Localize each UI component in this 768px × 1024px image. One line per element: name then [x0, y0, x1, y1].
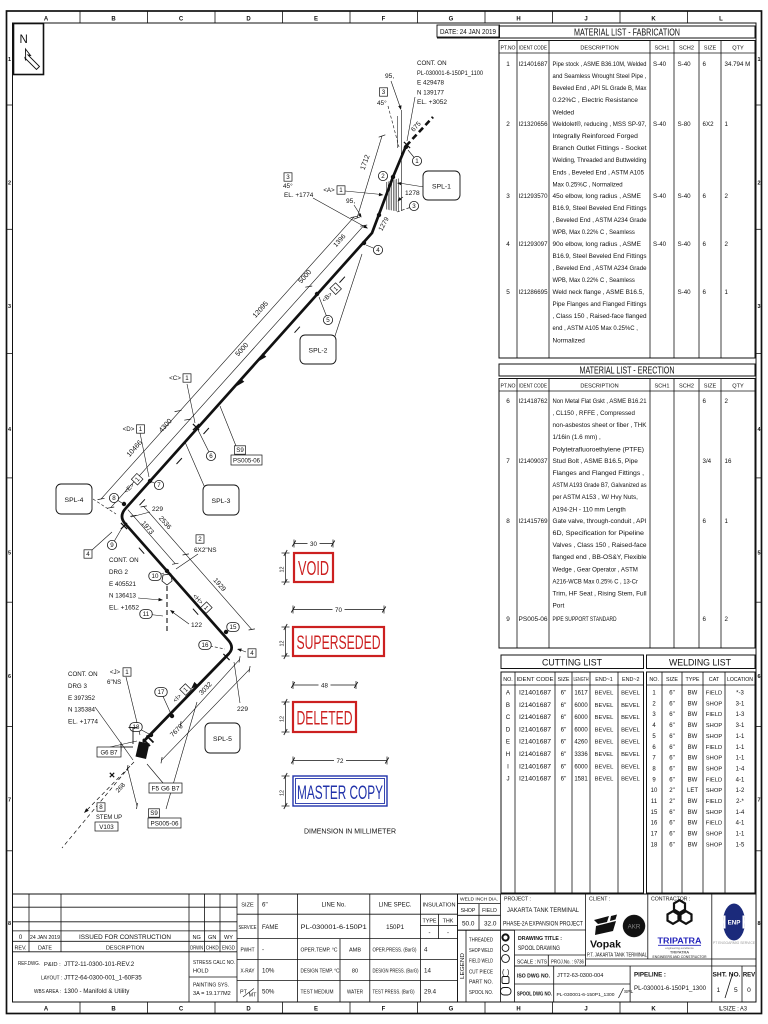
svg-text:EL. +1652: EL. +1652 — [109, 605, 140, 612]
svg-text:3336: 3336 — [574, 752, 588, 758]
svg-text:END~2: END~2 — [622, 677, 640, 683]
svg-text:PS005-06: PS005-06 — [233, 458, 261, 465]
svg-text:FIELD: FIELD — [706, 691, 722, 697]
svg-text:STRESS CALC NO.: STRESS CALC NO. — [193, 960, 235, 966]
svg-text:SIZE: SIZE — [704, 46, 717, 52]
svg-text:PIPELINE :: PIPELINE : — [634, 972, 666, 979]
svg-text:1-1: 1-1 — [736, 745, 745, 751]
svg-text:PROJ.No. : 9736: PROJ.No. : 9736 — [551, 960, 584, 966]
svg-text:I21401687: I21401687 — [519, 777, 552, 783]
svg-text:95,: 95, — [346, 198, 355, 205]
svg-text:CLIENT :: CLIENT : — [589, 897, 610, 903]
svg-text:Pipe stock , ASME B36.10M, Wel: Pipe stock , ASME B36.10M, Welded — [553, 61, 647, 68]
svg-text:CUTTING LIST: CUTTING LIST — [542, 658, 602, 669]
svg-text:1-4: 1-4 — [736, 767, 745, 773]
svg-text:9: 9 — [506, 616, 510, 623]
svg-text:1-4: 1-4 — [736, 810, 745, 816]
svg-text:6": 6" — [669, 832, 674, 838]
svg-text:G: G — [449, 1007, 454, 1013]
svg-text:30: 30 — [310, 541, 317, 548]
svg-text:6: 6 — [8, 674, 11, 680]
svg-text:SUPERSEDED: SUPERSEDED — [297, 633, 381, 654]
svg-text:I21401687: I21401687 — [519, 764, 552, 770]
svg-text:17: 17 — [651, 832, 658, 838]
svg-text:32.0: 32.0 — [484, 921, 497, 928]
svg-text:7: 7 — [8, 797, 11, 803]
svg-text:VOID: VOID — [298, 558, 329, 580]
svg-text:FIELD: FIELD — [482, 908, 497, 914]
svg-text:END~1: END~1 — [595, 677, 613, 683]
svg-text:34.794 M: 34.794 M — [725, 61, 751, 68]
svg-text:9: 9 — [110, 542, 114, 549]
svg-text:S-40: S-40 — [653, 121, 667, 128]
svg-text:SPL-5: SPL-5 — [213, 736, 232, 743]
svg-text:70: 70 — [335, 607, 342, 614]
svg-text:Trim, HF Seat , Rising Stem, F: Trim, HF Seat , Rising Stem, Full — [553, 590, 647, 597]
svg-text:229: 229 — [152, 506, 163, 513]
svg-text:8: 8 — [757, 921, 760, 927]
svg-text:3: 3 — [8, 304, 11, 310]
svg-text:K: K — [651, 1007, 656, 1013]
svg-text:S-40: S-40 — [653, 61, 667, 68]
svg-text:ENGINEERS AND CONSTRUCTOR: ENGINEERS AND CONSTRUCTOR — [653, 954, 707, 959]
svg-text:6": 6" — [561, 714, 567, 721]
svg-text:<D>: <D> — [123, 426, 135, 433]
svg-text:BW: BW — [688, 842, 698, 848]
svg-text:P&ID :: P&ID : — [44, 962, 61, 968]
svg-text:B: B — [111, 1007, 116, 1013]
svg-text:SIZE: SIZE — [241, 903, 254, 909]
svg-text:5: 5 — [8, 551, 11, 557]
svg-text:45o elbow, long radius , ASME: 45o elbow, long radius , ASME — [553, 193, 641, 200]
svg-text:12: 12 — [280, 716, 286, 722]
svg-text:N: N — [20, 34, 28, 46]
svg-text:6": 6" — [561, 702, 567, 709]
svg-text:24 JAN 2019: 24 JAN 2019 — [30, 935, 60, 941]
svg-text:BW: BW — [688, 712, 698, 718]
svg-text:L: L — [719, 17, 723, 23]
svg-text:FIELD: FIELD — [706, 712, 722, 718]
svg-text:BEVEL: BEVEL — [621, 764, 640, 770]
svg-text:FIELD: FIELD — [706, 777, 722, 783]
svg-text:4: 4 — [250, 650, 254, 657]
svg-text:S-40: S-40 — [678, 241, 692, 248]
svg-text:SHOP: SHOP — [706, 723, 723, 729]
svg-text:A216-WCB Max 0.25% C , 13-Cr: A216-WCB Max 0.25% C , 13-Cr — [553, 578, 639, 585]
svg-text:1: 1 — [339, 187, 343, 194]
svg-text:X-RAY: X-RAY — [241, 969, 255, 975]
svg-text:Max 0.25%C , Normalized: Max 0.25%C , Normalized — [553, 181, 624, 188]
svg-text:LEGEND: LEGEND — [460, 953, 466, 979]
svg-text:Gate valve, through-conduit ,: Gate valve, through-conduit , API — [553, 518, 647, 525]
svg-text:ISO DWG NO.: ISO DWG NO. — [517, 974, 550, 980]
svg-text:SIZE : A3: SIZE : A3 — [723, 1007, 748, 1013]
svg-text:SHOP: SHOP — [706, 701, 723, 707]
svg-text:SHT. NO.: SHT. NO. — [713, 972, 741, 979]
svg-text:PS005-06: PS005-06 — [519, 617, 549, 623]
svg-text:6"NS: 6"NS — [107, 679, 121, 686]
svg-text:S-40: S-40 — [653, 193, 667, 200]
svg-text:THK: THK — [443, 919, 454, 925]
svg-text:6": 6" — [561, 776, 567, 783]
svg-text:WBS AREA :: WBS AREA : — [34, 989, 61, 995]
svg-text:IDENT CODE: IDENT CODE — [519, 384, 547, 390]
svg-text:SPOOL NO.: SPOOL NO. — [469, 990, 493, 996]
svg-text:5: 5 — [757, 551, 760, 557]
svg-text:I21418762: I21418762 — [519, 399, 549, 405]
svg-text:50.0: 50.0 — [462, 921, 475, 928]
svg-text:THREADED: THREADED — [469, 938, 493, 944]
svg-text:PT ENGGARMIG SERVICE: PT ENGGARMIG SERVICE — [713, 941, 756, 945]
svg-text:5: 5 — [506, 289, 510, 296]
svg-text:10%: 10% — [262, 968, 275, 975]
svg-text:S-80: S-80 — [678, 121, 692, 128]
svg-text:SHOP: SHOP — [706, 767, 723, 773]
svg-text:6": 6" — [669, 745, 674, 751]
svg-text:6": 6" — [669, 777, 674, 783]
svg-text:WY: WY — [224, 935, 233, 941]
svg-text:7: 7 — [506, 458, 510, 465]
svg-text:1: 1 — [725, 518, 729, 525]
svg-text:SCH2: SCH2 — [679, 384, 694, 390]
svg-text:I21293570: I21293570 — [519, 194, 549, 200]
svg-text:Pipe Flanges and Flanged Fitti: Pipe Flanges and Flanged Fittings — [553, 301, 647, 308]
svg-text:4: 4 — [86, 551, 90, 558]
svg-text:C: C — [506, 714, 511, 721]
svg-text:1-5: 1-5 — [736, 842, 745, 848]
svg-text:LINE SPEC.: LINE SPEC. — [379, 903, 412, 909]
svg-text:TEST PRESS. (BarG): TEST PRESS. (BarG) — [373, 990, 415, 996]
svg-text:BEVEL: BEVEL — [621, 727, 640, 733]
svg-text:I21401687: I21401687 — [519, 752, 552, 758]
svg-text:6: 6 — [506, 398, 510, 405]
svg-text:I21293097: I21293097 — [519, 242, 549, 248]
svg-text:TYPE: TYPE — [422, 919, 436, 925]
svg-text:CUT PIECE: CUT PIECE — [469, 970, 493, 976]
svg-text:AKR: AKR — [628, 924, 641, 931]
svg-text:2: 2 — [8, 180, 11, 186]
svg-text:GN: GN — [208, 935, 216, 941]
svg-text:16: 16 — [725, 458, 732, 465]
svg-text:BEVEL: BEVEL — [595, 740, 614, 746]
svg-text:SHOP: SHOP — [706, 810, 723, 816]
svg-text:1-2: 1-2 — [736, 788, 745, 794]
svg-text:LENGTH: LENGTH — [574, 677, 589, 683]
svg-text:AMB: AMB — [349, 948, 361, 954]
svg-text:6": 6" — [561, 726, 567, 733]
svg-text:4: 4 — [376, 247, 380, 254]
svg-text:WPB, Max 0.22% C , Seamless: WPB, Max 0.22% C , Seamless — [553, 277, 635, 284]
svg-text:3: 3 — [412, 203, 416, 210]
svg-text:Weldolet®, reducing , MSS SP-9: Weldolet®, reducing , MSS SP-97, — [553, 120, 647, 128]
svg-text:Beveled End , API 5L Grade B,: Beveled End , API 5L Grade B, Max — [553, 85, 648, 92]
svg-text:6000: 6000 — [574, 727, 588, 733]
svg-text:45°: 45° — [283, 182, 293, 190]
svg-text:INSULATION: INSULATION — [423, 903, 456, 909]
svg-text:BEVEL: BEVEL — [621, 703, 640, 709]
svg-text:NO.: NO. — [649, 677, 659, 683]
svg-text:6: 6 — [757, 674, 760, 680]
svg-text:A: A — [44, 17, 49, 23]
svg-text:CONT. ON: CONT. ON — [417, 60, 447, 67]
svg-text:2: 2 — [381, 173, 385, 180]
svg-text:I21401687: I21401687 — [519, 62, 549, 68]
svg-text:72: 72 — [337, 758, 344, 765]
svg-text:2": 2" — [669, 799, 674, 805]
svg-text:1-1: 1-1 — [736, 756, 745, 762]
svg-text:2: 2 — [198, 536, 202, 543]
svg-text:BEVEL: BEVEL — [595, 764, 614, 770]
svg-text:PART NO.: PART NO. — [469, 980, 493, 986]
svg-text:BW: BW — [688, 701, 698, 707]
svg-text:1-1: 1-1 — [736, 832, 745, 838]
svg-text:16: 16 — [651, 821, 658, 827]
svg-text:DESIGN TEMP. °C: DESIGN TEMP. °C — [301, 969, 340, 975]
svg-text:5: 5 — [326, 317, 330, 324]
svg-text:WELDING LIST: WELDING LIST — [669, 658, 731, 669]
svg-text:DRG 3: DRG 3 — [68, 683, 87, 690]
svg-text:BEVEL: BEVEL — [595, 715, 614, 721]
svg-text:TRIPATRA: TRIPATRA — [658, 937, 702, 946]
svg-text:DESCRIPTION: DESCRIPTION — [106, 946, 144, 952]
svg-text:A194-2H - 110 mm Length: A194-2H - 110 mm Length — [553, 506, 627, 513]
svg-text:CAT: CAT — [709, 677, 720, 683]
svg-text:): ) — [507, 968, 509, 977]
svg-text:48: 48 — [321, 682, 328, 689]
svg-text:MATERIAL LIST - ERECTION: MATERIAL LIST - ERECTION — [580, 365, 675, 377]
svg-text:6": 6" — [669, 701, 674, 707]
svg-text:C: C — [179, 17, 184, 23]
svg-text:S-40: S-40 — [678, 193, 692, 200]
svg-text:Valves , Class 150 , Raised-fa: Valves , Class 150 , Raised-face — [553, 542, 647, 549]
svg-text:1: 1 — [757, 57, 760, 63]
svg-text:4-1: 4-1 — [736, 777, 745, 783]
svg-text:SPOOL DWG NO.: SPOOL DWG NO. — [517, 992, 552, 998]
svg-text:SPL: SPL — [624, 989, 634, 995]
svg-text:I21401687: I21401687 — [519, 715, 552, 721]
svg-text:BEVEL: BEVEL — [595, 727, 614, 733]
svg-text:5: 5 — [734, 987, 738, 994]
svg-text:SIZE: SIZE — [704, 384, 717, 390]
svg-text:18: 18 — [651, 842, 658, 848]
svg-text:BEVEL: BEVEL — [595, 777, 614, 783]
svg-text:2: 2 — [757, 180, 760, 186]
svg-text:6": 6" — [561, 739, 567, 746]
svg-text:10: 10 — [152, 573, 159, 580]
svg-text:EL. +3052: EL. +3052 — [417, 99, 448, 106]
svg-text:Branch Outlet Fittings - Socke: Branch Outlet Fittings - Socket — [553, 145, 647, 152]
svg-text:BW: BW — [688, 734, 698, 740]
svg-text:SCH1: SCH1 — [655, 384, 670, 390]
svg-text:Polytetrafluoroethylene (PTFE): Polytetrafluoroethylene (PTFE) — [553, 446, 645, 453]
svg-text:BEVEL: BEVEL — [621, 691, 640, 697]
svg-text:N 135384: N 135384 — [68, 707, 96, 714]
svg-text:15: 15 — [651, 810, 658, 816]
svg-text:2: 2 — [725, 241, 729, 248]
svg-text:SPL-3: SPL-3 — [212, 498, 231, 505]
svg-text:0.22%C , Electric Resistance: 0.22%C , Electric Resistance — [553, 97, 639, 104]
svg-text:PL-030001-6-150P1_1300: PL-030001-6-150P1_1300 — [634, 985, 706, 992]
svg-text:, Class 150 , Raised-face flan: , Class 150 , Raised-face flanged — [553, 313, 647, 320]
svg-text:I21401687: I21401687 — [519, 727, 552, 733]
svg-text:3-1: 3-1 — [736, 723, 745, 729]
svg-text:E: E — [314, 17, 318, 23]
svg-text:SHOP: SHOP — [461, 908, 476, 914]
svg-text:6": 6" — [669, 723, 674, 729]
svg-text:SPL-4: SPL-4 — [65, 497, 84, 504]
svg-text:DRG 2: DRG 2 — [109, 569, 128, 576]
svg-text:PWHT: PWHT — [241, 948, 256, 954]
svg-text:H: H — [516, 17, 520, 23]
svg-text:29.4: 29.4 — [424, 989, 437, 996]
svg-text:LAYOUT :: LAYOUT : — [41, 976, 62, 982]
svg-text:G: G — [449, 17, 454, 23]
svg-text:-: - — [447, 931, 449, 937]
svg-text:LINE No.: LINE No. — [322, 903, 347, 909]
svg-text:P.T. JAKARTA TANK TERMINAL: P.T. JAKARTA TANK TERMINAL — [587, 953, 647, 959]
svg-text:4260: 4260 — [574, 740, 588, 746]
svg-text:8: 8 — [99, 804, 103, 811]
svg-text:Stud Bolt , ASME B16.5, Pipe: Stud Bolt , ASME B16.5, Pipe — [553, 458, 639, 465]
svg-text:10: 10 — [651, 788, 658, 794]
svg-text:PROJECT :: PROJECT : — [504, 897, 531, 903]
svg-text:FAME: FAME — [262, 925, 278, 931]
svg-text:12: 12 — [280, 567, 286, 573]
svg-text:Weld neck flange , ASME B16.5,: Weld neck flange , ASME B16.5, — [553, 289, 645, 296]
svg-text:BW: BW — [688, 723, 698, 729]
svg-text:PIPE SUPPORT STANDARD: PIPE SUPPORT STANDARD — [553, 616, 617, 623]
svg-text:2: 2 — [725, 616, 729, 623]
svg-text:SHOP: SHOP — [706, 756, 723, 762]
svg-text:CHKD: CHKD — [206, 946, 219, 952]
svg-text:4: 4 — [506, 241, 510, 248]
svg-text:PT.NO: PT.NO — [501, 384, 517, 390]
svg-text:6": 6" — [669, 756, 674, 762]
svg-text:QTY: QTY — [732, 46, 744, 52]
svg-text:3/4: 3/4 — [703, 458, 712, 465]
svg-text:1: 1 — [8, 57, 11, 63]
svg-text:SERVICE: SERVICE — [239, 925, 257, 931]
svg-text:*-3: *-3 — [736, 691, 744, 697]
svg-text:N 136413: N 136413 — [109, 593, 137, 600]
svg-text:non-asbestos sheet or fiber ,: non-asbestos sheet or fiber , THK — [553, 422, 648, 429]
svg-text:7: 7 — [157, 482, 161, 489]
svg-text:PT.NO: PT.NO — [501, 46, 517, 52]
svg-text:11: 11 — [651, 799, 658, 805]
svg-text:SHOP: SHOP — [706, 788, 723, 794]
svg-text:STEM UP: STEM UP — [96, 814, 122, 821]
svg-text:14: 14 — [424, 968, 431, 975]
svg-text:2": 2" — [669, 788, 674, 794]
svg-text:80: 80 — [352, 969, 358, 975]
svg-text:K: K — [651, 17, 656, 23]
svg-text:6000: 6000 — [574, 715, 588, 721]
svg-text:PAINTING SYS.: PAINTING SYS. — [193, 983, 229, 989]
svg-text:0: 0 — [747, 987, 751, 994]
svg-text:PS005-06: PS005-06 — [151, 821, 180, 828]
svg-text:I21401687: I21401687 — [519, 740, 552, 746]
svg-text:6X2: 6X2 — [703, 121, 715, 128]
svg-text:DATE: 24 JAN 2019: DATE: 24 JAN 2019 — [440, 27, 496, 36]
svg-text:1278: 1278 — [405, 190, 420, 197]
svg-text:BEVEL: BEVEL — [621, 752, 640, 758]
svg-text:6": 6" — [669, 734, 674, 740]
svg-text:NG: NG — [193, 935, 201, 941]
svg-text:4-1: 4-1 — [736, 821, 745, 827]
svg-text:BEVEL: BEVEL — [595, 703, 614, 709]
svg-text:per ASTM A153 , W/ Hvy Nuts,: per ASTM A153 , W/ Hvy Nuts, — [553, 494, 639, 501]
svg-text:S-40: S-40 — [678, 61, 692, 68]
svg-text:WATER: WATER — [347, 990, 363, 996]
svg-text:D: D — [506, 726, 511, 733]
svg-text:DATE: DATE — [38, 946, 52, 952]
svg-text:BEVEL: BEVEL — [621, 715, 640, 721]
svg-text:E 429478: E 429478 — [417, 80, 445, 87]
svg-text:JTT2-64-0300-001_1-60F35: JTT2-64-0300-001_1-60F35 — [64, 975, 142, 982]
svg-text:OPER.PRESS. (BarG): OPER.PRESS. (BarG) — [373, 948, 417, 954]
svg-text:1: 1 — [725, 289, 729, 296]
svg-text:E 405521: E 405521 — [109, 581, 137, 588]
svg-text:I: I — [507, 763, 509, 770]
svg-text:CONTRACTOR :: CONTRACTOR : — [651, 897, 690, 903]
svg-text:6": 6" — [561, 763, 567, 770]
svg-text:BEVEL: BEVEL — [595, 691, 614, 697]
svg-text:ENGD: ENGD — [222, 946, 235, 952]
svg-text:Welding, Threaded and Buttweld: Welding, Threaded and Buttwelding — [553, 157, 647, 164]
svg-text:EL. +1774: EL. +1774 — [68, 719, 99, 726]
svg-text:3-1: 3-1 — [736, 701, 745, 707]
svg-text:3: 3 — [757, 304, 760, 310]
svg-text:B: B — [111, 17, 116, 23]
svg-text:OPER.TEMP. °C: OPER.TEMP. °C — [301, 948, 338, 954]
svg-text:Vopak: Vopak — [590, 940, 622, 951]
svg-text:G6 B7: G6 B7 — [100, 751, 118, 757]
svg-text:BW: BW — [688, 810, 698, 816]
svg-text:Ends , Beveled End , ASTM A105: Ends , Beveled End , ASTM A105 — [553, 169, 645, 176]
svg-text:F: F — [382, 1007, 386, 1013]
svg-text:1: 1 — [415, 158, 419, 165]
svg-text:2: 2 — [725, 193, 729, 200]
svg-text:NO.: NO. — [503, 677, 513, 683]
svg-text:2-*: 2-* — [736, 799, 744, 805]
svg-text:229: 229 — [237, 706, 248, 713]
svg-text:1: 1 — [185, 375, 189, 382]
svg-text:IDENT CODE: IDENT CODE — [517, 677, 554, 683]
svg-text:EL. +1774: EL. +1774 — [284, 192, 314, 199]
svg-text:6": 6" — [669, 691, 674, 697]
svg-text:6: 6 — [703, 289, 707, 296]
svg-text:SIZE: SIZE — [666, 677, 678, 683]
svg-text:PHASE-2A EXPANSION PROJECT: PHASE-2A EXPANSION PROJECT — [503, 921, 583, 928]
svg-text:17: 17 — [158, 689, 165, 696]
svg-text:6": 6" — [669, 712, 674, 718]
svg-text:6": 6" — [561, 751, 567, 758]
svg-text:DELETED: DELETED — [297, 709, 353, 730]
svg-text:4: 4 — [424, 947, 428, 954]
svg-text:LET: LET — [687, 788, 698, 794]
svg-text:ISSUED FOR CONSTRUCTION: ISSUED FOR CONSTRUCTION — [79, 935, 171, 941]
svg-text:E: E — [314, 1007, 318, 1013]
svg-text:150P1: 150P1 — [386, 924, 404, 931]
svg-text:SHOP: SHOP — [706, 734, 723, 740]
svg-text:SHOP: SHOP — [706, 832, 723, 838]
svg-text:IDENT CODE: IDENT CODE — [519, 46, 547, 52]
svg-text:S9: S9 — [150, 810, 158, 817]
svg-text:HOLD: HOLD — [193, 969, 209, 975]
svg-text:BW: BW — [688, 777, 698, 783]
svg-text:6: 6 — [703, 61, 707, 68]
svg-text:16: 16 — [202, 642, 209, 649]
